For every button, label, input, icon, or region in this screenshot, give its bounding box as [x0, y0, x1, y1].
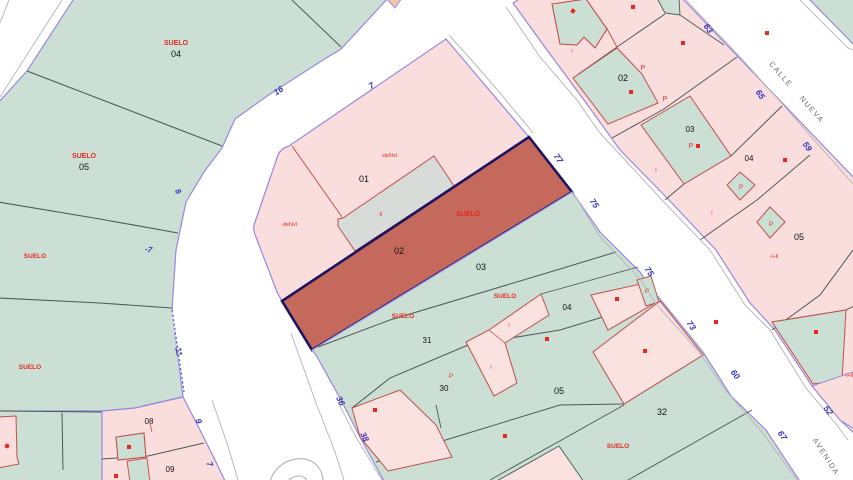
svg-text:P: P [769, 222, 773, 228]
svg-text:SUELO: SUELO [456, 211, 481, 218]
svg-text:32: 32 [657, 407, 667, 417]
svg-text:P: P [449, 374, 453, 380]
svg-text:31: 31 [423, 336, 432, 345]
svg-text:-deNvl: -deNvl [381, 153, 397, 159]
svg-text:I: I [571, 49, 572, 55]
svg-text:05: 05 [79, 162, 89, 172]
svg-text:01: 01 [359, 174, 369, 184]
svg-text:-deNvl: -deNvl [281, 222, 297, 228]
svg-text:I: I [508, 323, 509, 329]
svg-text:I: I [655, 168, 656, 174]
svg-text:05: 05 [554, 386, 564, 396]
svg-text:02: 02 [618, 73, 628, 83]
svg-text:SUELO: SUELO [607, 443, 629, 450]
svg-text:P: P [689, 143, 694, 150]
svg-text:SUELO: SUELO [164, 40, 189, 47]
svg-text:02: 02 [394, 246, 404, 256]
svg-text:04: 04 [563, 303, 572, 312]
svg-text:I: I [490, 365, 491, 371]
svg-text:03: 03 [476, 262, 486, 272]
svg-text:03: 03 [686, 125, 695, 134]
svg-text:08: 08 [145, 417, 154, 426]
svg-text:09: 09 [166, 465, 175, 474]
svg-text:SUELO: SUELO [24, 253, 46, 260]
svg-text:-I+II: -I+II [770, 254, 779, 260]
svg-text:-II: -II [378, 212, 383, 218]
svg-text:P: P [641, 65, 646, 72]
svg-text:SUELO: SUELO [72, 153, 97, 160]
svg-text:SUELO: SUELO [494, 293, 516, 300]
svg-text:-I+II: -I+II [845, 373, 853, 379]
svg-text:30: 30 [440, 384, 449, 393]
svg-text:I: I [711, 211, 712, 217]
svg-text:05: 05 [794, 232, 804, 242]
svg-text:SUELO: SUELO [19, 364, 41, 371]
svg-text:04: 04 [745, 154, 754, 163]
svg-text:SUELO: SUELO [392, 313, 414, 320]
svg-text:P: P [739, 185, 743, 191]
svg-text:P: P [663, 96, 668, 103]
svg-text:04: 04 [171, 49, 181, 59]
